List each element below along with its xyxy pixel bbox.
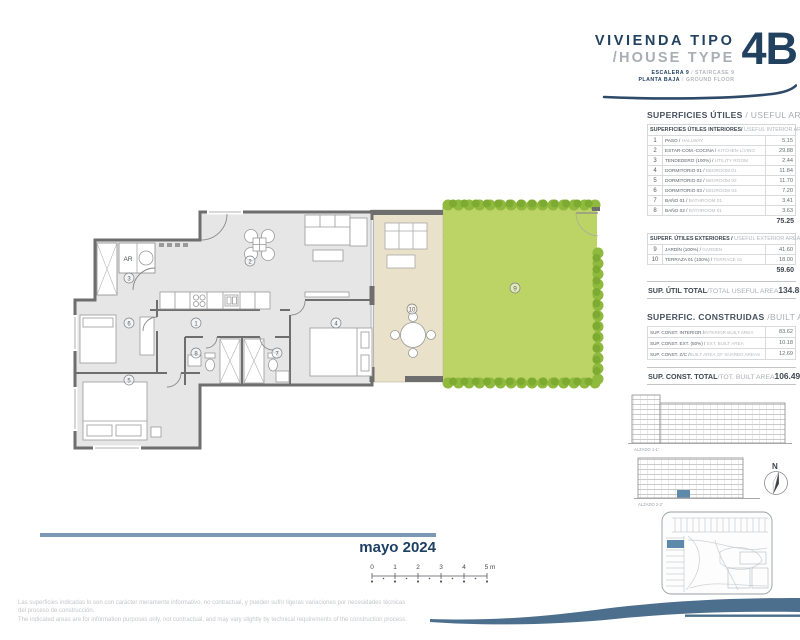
room-label: 2 xyxy=(245,256,255,266)
table-row: 2ESTAR-COM.-COCINA / KITCHEN-LIVING29.88 xyxy=(648,146,796,156)
row-label: DORMITORIO 01 / BEDROOM 01 xyxy=(663,166,766,176)
row-value: 29.88 xyxy=(766,146,796,156)
header-swoosh xyxy=(600,84,797,102)
date-label: mayo 2024 xyxy=(236,539,436,556)
room-label: 1 xyxy=(191,318,201,328)
row-label: ESTAR-COM.-COCINA / KITCHEN-LIVING xyxy=(663,146,766,156)
toilet xyxy=(206,359,215,371)
subtitle-staircase: ESCALERA 9 / STAIRCASE 9 xyxy=(595,70,735,77)
room-label-terrace: 10 xyxy=(407,304,417,314)
room-label: 7 xyxy=(272,348,282,358)
row-value: 2.44 xyxy=(766,156,796,166)
exterior-areas-header: SUPERF. ÚTILES EXTERIORES / USEFUL EXTER… xyxy=(647,233,796,244)
row-number: 9 xyxy=(648,245,663,255)
room-label: 3 xyxy=(124,273,134,283)
row-value: 3.41 xyxy=(766,196,796,206)
svg-text:9: 9 xyxy=(513,285,517,292)
toilet xyxy=(269,359,278,371)
svg-text:1: 1 xyxy=(393,564,397,571)
row-value: 7.20 xyxy=(766,186,796,196)
table-row: 8BAÑO 02 / BATHROOM 013.63 xyxy=(648,206,796,216)
row-value: 18.00 xyxy=(766,255,796,265)
garden-lawn xyxy=(443,205,597,383)
room-label: 6 xyxy=(124,318,134,328)
terrace-low-table xyxy=(387,255,415,268)
built-area-title: SUPERFIC. CONSTRUIDAS /BUILT AREAS xyxy=(647,312,796,322)
coffee-table xyxy=(313,250,343,261)
row-label: PASO / HALLWAY xyxy=(663,136,766,146)
room-label: 4 xyxy=(331,318,341,328)
title-lines: VIVIENDA TIPO /HOUSE TYPE ESCALERA 9 / S… xyxy=(595,28,735,84)
row-value: 5.15 xyxy=(766,136,796,146)
nightstand xyxy=(151,427,161,437)
interior-areas-header: SUPERFICIES ÚTILES INTERIORES/ USEFUL IN… xyxy=(647,124,796,135)
row-value: 11.70 xyxy=(766,176,796,186)
site-highlighted-unit xyxy=(667,540,684,548)
table-row: SUP. CONST. EXT. (50%) / EXT. BUILT AREA… xyxy=(648,338,796,349)
row-label: BAÑO 01 / BATHROOM 01 xyxy=(663,196,766,206)
title-subtitles: ESCALERA 9 / STAIRCASE 9 PLANTA BAJA / G… xyxy=(595,70,735,84)
house-type-code: 4B xyxy=(741,28,797,71)
exterior-areas-table: 9JARDÍN (100%) / GARDEN41.60 10TERRAZA 0… xyxy=(647,244,796,265)
useful-total-value: 134.85 xyxy=(778,285,800,295)
floor-plan: 9 10 xyxy=(55,165,625,465)
table-row: 5DORMITORIO 02 / BEDROOM 0211.70 xyxy=(648,176,796,186)
bedroom-01-furniture xyxy=(310,328,372,376)
svg-text:5 m: 5 m xyxy=(485,564,496,571)
row-label: DORMITORIO 03 / BEDROOM 03 xyxy=(663,186,766,196)
date-rule xyxy=(40,533,436,537)
row-number: 5 xyxy=(648,176,663,186)
table-row: 3TENDEDERO (100%) / UTILITY ROOM2.44 xyxy=(648,156,796,166)
row-value: 10.18 xyxy=(766,338,796,349)
table-row: 10TERRAZA 01 (100%) / TERRACE 0118.00 xyxy=(648,255,796,265)
kitchen-counter xyxy=(160,292,270,309)
row-value: 41.60 xyxy=(766,245,796,255)
useful-total-row: SUP. ÚTIL TOTAL/TOTAL USEFUL AREA 134.85 xyxy=(647,281,796,299)
title-es: VIVIENDA TIPO xyxy=(595,33,735,50)
row-label: TENDEDERO (100%) / UTILITY ROOM xyxy=(663,156,766,166)
title-en: /HOUSE TYPE xyxy=(595,50,735,67)
footer-swoosh xyxy=(430,592,800,626)
scale-numbers: 0 1 2 3 4 5 m xyxy=(370,564,495,571)
title-block: VIVIENDA TIPO /HOUSE TYPE ESCALERA 9 / S… xyxy=(555,28,797,84)
swoosh-line xyxy=(604,86,796,99)
ar-label: AR xyxy=(123,256,132,263)
row-number: 7 xyxy=(648,196,663,206)
elevation-1: ALZADO 1-1' xyxy=(628,395,792,452)
terrace-bottom-wall xyxy=(405,376,443,382)
built-total-value: 106.49 xyxy=(775,371,800,381)
swoosh-shape xyxy=(430,598,800,624)
reference-drawings: ALZADO 1-1' ALZADO 2-2' N xyxy=(620,390,798,602)
row-number: 8 xyxy=(648,206,663,216)
sofa xyxy=(305,215,350,245)
row-number: 3 xyxy=(648,156,663,166)
elevation-1-label: ALZADO 1-1' xyxy=(634,447,659,452)
bedroom-03-wardrobe xyxy=(140,317,154,355)
room-label: 8 xyxy=(191,348,201,358)
svg-text:4: 4 xyxy=(462,564,466,571)
table-row: 4DORMITORIO 01 / BEDROOM 0111.84 xyxy=(648,166,796,176)
scale-bar: 0 1 2 3 4 5 m xyxy=(362,560,507,586)
table-row: SUP. CONST. Z/C /BUILT AREA OF SHARED AR… xyxy=(648,349,796,360)
table-row: 7BAÑO 01 / BATHROOM 013.41 xyxy=(648,196,796,206)
row-value: 11.84 xyxy=(766,166,796,176)
row-label: BAÑO 02 / BATHROOM 01 xyxy=(663,206,766,216)
row-label: SUP. CONST. EXT. (50%) / EXT. BUILT AREA xyxy=(648,338,766,349)
interior-subtotal: 75.25 xyxy=(647,216,796,225)
row-value: 83.62 xyxy=(766,327,796,338)
elevation-2: ALZADO 2-2' xyxy=(634,458,760,507)
row-number: 10 xyxy=(648,255,663,265)
row-label: DORMITORIO 02 / BEDROOM 02 xyxy=(663,176,766,186)
tv-unit xyxy=(305,292,349,297)
site-plan xyxy=(662,512,772,594)
terrace-area: 10 xyxy=(370,210,443,382)
row-value: 3.63 xyxy=(766,206,796,216)
useful-area-title: SUPERFICIES ÚTILES / USEFUL AREA xyxy=(647,110,796,120)
sink xyxy=(276,371,289,382)
highlighted-unit xyxy=(677,490,690,498)
table-row: 1PASO / HALLWAY5.15 xyxy=(648,136,796,146)
elevation-2-label: ALZADO 2-2' xyxy=(638,502,663,507)
swoosh-tail xyxy=(685,615,800,617)
table-row: 9JARDÍN (100%) / GARDEN41.60 xyxy=(648,245,796,255)
svg-text:3: 3 xyxy=(439,564,443,571)
row-label: SUP. CONST. INTERIOR /INTERIOR BUILT ARE… xyxy=(648,327,766,338)
north-label: N xyxy=(772,462,778,471)
apartment: AR xyxy=(73,210,375,451)
room-label: 5 xyxy=(124,375,134,385)
row-number: 4 xyxy=(648,166,663,176)
area-tables-panel: SUPERFICIES ÚTILES / USEFUL AREA SUPERFI… xyxy=(647,110,796,385)
row-number: 6 xyxy=(648,186,663,196)
row-label: JARDÍN (100%) / GARDEN xyxy=(663,245,766,255)
built-total-row: SUP. CONST. TOTAL/TOT. BUILT AREA 106.49 xyxy=(647,367,796,385)
row-label: SUP. CONST. Z/C /BUILT AREA OF SHARED AR… xyxy=(648,349,766,360)
scale-dots xyxy=(371,578,488,583)
svg-text:10: 10 xyxy=(409,307,416,313)
row-label: TERRAZA 01 (100%) / TERRACE 01 xyxy=(663,255,766,265)
row-number: 2 xyxy=(648,146,663,156)
svg-text:0: 0 xyxy=(370,564,374,571)
table-row: SUP. CONST. INTERIOR /INTERIOR BUILT ARE… xyxy=(648,327,796,338)
built-areas-table: SUP. CONST. INTERIOR /INTERIOR BUILT ARE… xyxy=(647,326,796,360)
table-row: 6DORMITORIO 03 / BEDROOM 037.20 xyxy=(648,186,796,196)
terrace-lounger xyxy=(385,223,427,249)
terrace-top-wall xyxy=(370,210,443,215)
compass: N xyxy=(765,462,788,495)
row-value: 12.69 xyxy=(766,349,796,360)
interior-areas-table: 1PASO / HALLWAY5.15 2ESTAR-COM.-COCINA /… xyxy=(647,135,796,216)
chaise xyxy=(350,218,367,246)
garden-area: 9 xyxy=(443,204,600,384)
row-number: 1 xyxy=(648,136,663,146)
exterior-subtotal: 59.60 xyxy=(647,265,796,274)
room-label-garden: 9 xyxy=(510,283,520,293)
svg-text:2: 2 xyxy=(416,564,420,571)
